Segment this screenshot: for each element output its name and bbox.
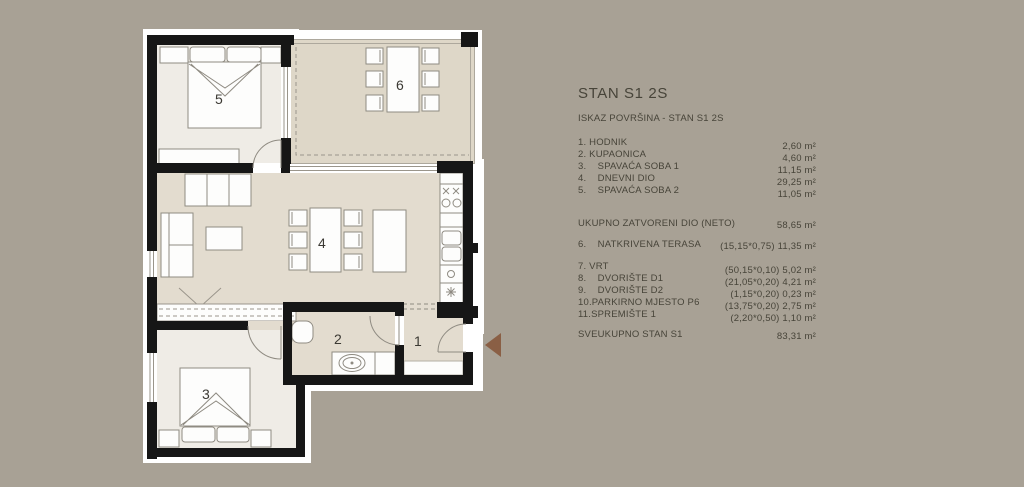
area-row-value: 11,05 m² xyxy=(778,189,816,201)
terrace xyxy=(290,32,479,164)
area-row: 3. SPAVAĆA SOBA 1 11,15 m² xyxy=(578,161,816,173)
area-row-label: SVEUKUPNO STAN S1 xyxy=(578,329,683,341)
window-icon xyxy=(281,67,291,138)
nightstand xyxy=(159,430,179,447)
burner-icon xyxy=(446,287,456,297)
coffee-table xyxy=(206,227,242,250)
area-panel: STAN S1 2S ISKAZ POVRŠINA - STAN S1 2S 1… xyxy=(578,86,816,341)
area-row-label: 3. SPAVAĆA SOBA 1 xyxy=(578,161,679,173)
room-label-6: 6 xyxy=(396,77,404,93)
area-row-label: 6. NATKRIVENA TERASA xyxy=(578,239,701,251)
sofa-icon xyxy=(161,213,193,277)
plan-title: STAN S1 2S xyxy=(578,86,816,101)
area-row-value: (2,20*0,50) 1,10 m² xyxy=(730,313,816,325)
area-row-value: 83,31 m² xyxy=(777,331,816,343)
sliding-glass-door xyxy=(290,164,437,173)
panel-subtitle: ISKAZ POVRŠINA - STAN S1 2S xyxy=(578,113,816,125)
terrace-row: 6. NATKRIVENA TERASA (15,15*0,75) 11,35 … xyxy=(578,239,816,251)
total-closed-row: UKUPNO ZATVORENI DIO (NETO) 58,65 m² xyxy=(578,218,816,230)
closed-rooms-list: 1. HODNIK 2,60 m² 2. KUPAONICA 4,60 m² 3… xyxy=(578,137,816,197)
outdoor-list: 7. VRT (50,15*0,10) 5,02 m² 8. DVORIŠTE … xyxy=(578,261,816,321)
washbasin-icon xyxy=(332,352,395,375)
area-row-value: 29,25 m² xyxy=(777,177,816,189)
kitchen-island xyxy=(373,210,406,272)
grand-total-row: SVEUKUPNO STAN S1 83,31 m² xyxy=(578,329,816,341)
area-row-label: 4. DNEVNI DIO xyxy=(578,173,655,185)
room-label-1: 1 xyxy=(414,333,422,349)
room-label-5: 5 xyxy=(215,91,223,107)
terrace-column xyxy=(461,32,478,47)
area-row-label: 1. HODNIK xyxy=(578,137,627,149)
area-row-value: 4,60 m² xyxy=(782,153,816,165)
room-label-4: 4 xyxy=(318,235,326,251)
area-row-label: UKUPNO ZATVORENI DIO (NETO) xyxy=(578,218,735,230)
area-row-value: (13,75*0,20) 2,75 m² xyxy=(725,301,816,313)
area-row: 2. KUPAONICA 4,60 m² xyxy=(578,149,816,161)
kitchen-counter xyxy=(440,173,463,303)
floor-plan: 5 6 4 3 2 1 xyxy=(0,0,1024,487)
page: 5 6 4 3 2 1 STAN S1 2S ISKAZ POVRŠINA - … xyxy=(0,0,1024,487)
sideboard xyxy=(185,174,251,206)
area-row-value: 11,15 m² xyxy=(778,165,816,177)
area-row-label: 10.PARKIRNO MJESTO P6 xyxy=(578,297,700,309)
area-row-value: 58,65 m² xyxy=(777,220,816,232)
area-row: 1. HODNIK 2,60 m² xyxy=(578,137,816,149)
area-row-label: 7. VRT xyxy=(578,261,609,273)
area-row-label: 5. SPAVAĆA SOBA 2 xyxy=(578,185,679,197)
area-row-value: (21,05*0,20) 4,21 m² xyxy=(725,277,816,289)
window-icon xyxy=(147,251,157,277)
wardrobe xyxy=(160,47,188,63)
double-bed-icon xyxy=(180,368,250,442)
room-label-3: 3 xyxy=(202,386,210,402)
area-row-value: 2,60 m² xyxy=(782,141,816,153)
area-row-label: 8. DVORIŠTE D1 xyxy=(578,273,663,285)
area-row-label: 9. DVORIŠTE D2 xyxy=(578,285,663,297)
nightstand xyxy=(251,430,271,447)
area-row-value: (50,15*0,10) 5,02 m² xyxy=(725,265,816,277)
room-label-2: 2 xyxy=(334,331,342,347)
area-row-label: 2. KUPAONICA xyxy=(578,149,646,161)
dresser xyxy=(159,149,239,164)
window-icon xyxy=(147,353,157,402)
area-row-value: (1,15*0,20) 0,23 m² xyxy=(730,289,816,301)
area-row-value: (15,15*0,75) 11,35 m² xyxy=(720,241,816,253)
wardrobe xyxy=(261,47,281,63)
area-row-label: 11.SPREMIŠTE 1 xyxy=(578,309,656,321)
entrance-arrow-icon xyxy=(485,333,501,357)
double-bed-icon xyxy=(188,47,261,128)
area-row: 7. VRT (50,15*0,10) 5,02 m² xyxy=(578,261,816,273)
